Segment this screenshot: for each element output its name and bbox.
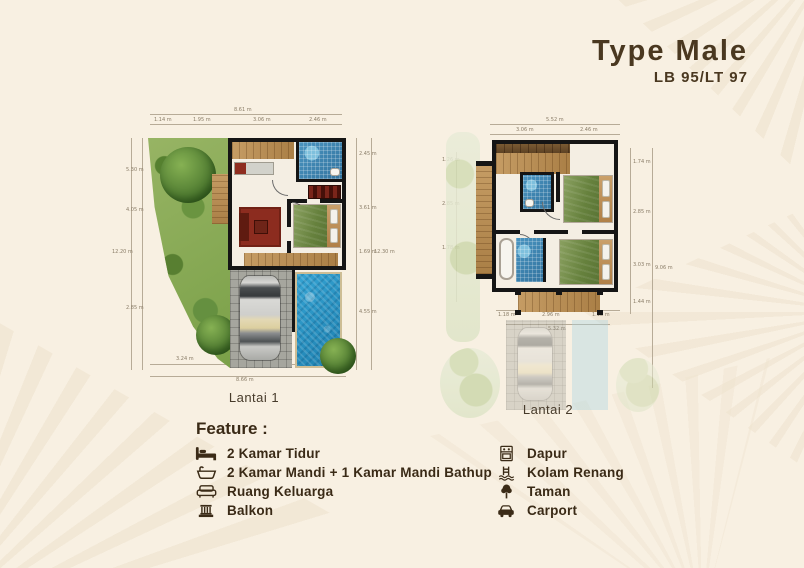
dimension-line bbox=[150, 114, 342, 115]
roof-edge bbox=[496, 144, 570, 153]
wall-segment bbox=[287, 199, 291, 227]
dimension-label: 12.20 m bbox=[112, 250, 133, 255]
house-lantai-2 bbox=[492, 140, 618, 292]
dimension-label: 2.96 m bbox=[542, 313, 560, 318]
feature-label: Taman bbox=[527, 484, 571, 499]
dimension-line bbox=[150, 124, 342, 125]
pillow bbox=[602, 244, 610, 260]
feature-item: Kolam Renang bbox=[494, 463, 624, 482]
dimension-label: 1.74 m bbox=[633, 160, 651, 165]
sofa bbox=[239, 213, 249, 241]
car bbox=[240, 276, 280, 360]
deck bbox=[232, 142, 294, 159]
pillow bbox=[602, 180, 610, 197]
dimension-label: 2.46 m bbox=[309, 118, 327, 123]
feature-list-right: Dapur Kolam Renang Taman Carport bbox=[494, 444, 624, 520]
palm-tree bbox=[160, 147, 216, 203]
wall-segment bbox=[534, 230, 568, 234]
toilet bbox=[525, 199, 534, 207]
dimension-label: 3.06 m bbox=[253, 118, 271, 123]
balcony-post bbox=[597, 310, 603, 315]
dimension-label: 5.52 m bbox=[546, 118, 564, 123]
door-arc bbox=[542, 202, 560, 220]
dimension-line bbox=[652, 148, 653, 388]
feature-item: Balkon bbox=[194, 501, 492, 520]
dimension-label: 5.30 m bbox=[126, 168, 144, 173]
plan-label-lantai-1: Lantai 1 bbox=[128, 390, 380, 405]
feature-item: Taman bbox=[494, 482, 624, 501]
bathroom bbox=[516, 238, 546, 282]
wall-segment bbox=[320, 199, 342, 203]
bathtub bbox=[499, 238, 514, 280]
feature-item: 2 Kamar Mandi + 1 Kamar Mandi Bathup bbox=[194, 463, 492, 482]
dimension-label: 8.61 m bbox=[234, 108, 252, 113]
pillow bbox=[330, 228, 338, 243]
dimension-line bbox=[630, 148, 631, 314]
dimension-label: 2.45 m bbox=[359, 152, 377, 157]
feature-label: 2 Kamar Tidur bbox=[227, 446, 320, 461]
dimension-label: 8.66 m bbox=[236, 378, 254, 383]
dimension-label: 4.55 m bbox=[359, 310, 377, 315]
plan-label-lantai-2: Lantai 2 bbox=[448, 402, 648, 417]
ground-floor-ghost bbox=[496, 320, 620, 410]
ghost-car bbox=[518, 328, 552, 400]
balcony-post bbox=[556, 289, 562, 295]
dimension-line bbox=[490, 134, 620, 135]
sink bbox=[330, 168, 340, 176]
feature-list-left: 2 Kamar Tidur 2 Kamar Mandi + 1 Kamar Ma… bbox=[194, 444, 492, 520]
pillow bbox=[330, 209, 338, 224]
balcony-post bbox=[515, 289, 521, 295]
dimension-label: 1.14 m bbox=[154, 118, 172, 123]
dimension-line bbox=[356, 138, 357, 370]
terrace-deck bbox=[244, 253, 338, 266]
stove bbox=[235, 163, 246, 174]
palm-tree bbox=[320, 338, 356, 374]
house-lantai-1 bbox=[228, 138, 346, 270]
coffee-table bbox=[254, 220, 268, 234]
dimension-label: 2.85 m bbox=[633, 210, 651, 215]
kitchen-icon bbox=[494, 445, 518, 462]
bed-blanket bbox=[564, 176, 599, 222]
feature-label: 2 Kamar Mandi + 1 Kamar Mandi Bathup bbox=[227, 465, 492, 480]
dimension-label: 4.05 m bbox=[126, 208, 144, 213]
bed-headboard bbox=[327, 205, 340, 247]
dimension-line bbox=[371, 138, 372, 370]
dimension-label: 9.06 m bbox=[655, 266, 673, 271]
door-arc bbox=[272, 180, 288, 196]
wall-segment bbox=[496, 230, 520, 234]
bed bbox=[294, 205, 340, 247]
feature-item: Ruang Keluarga bbox=[194, 482, 492, 501]
bed-headboard bbox=[599, 240, 612, 284]
bed bbox=[564, 176, 612, 222]
dimension-label: 12.30 m bbox=[374, 250, 395, 255]
feature-item: 2 Kamar Tidur bbox=[194, 444, 492, 463]
page-subtitle: LB 95/LT 97 bbox=[592, 69, 748, 86]
dimension-label: 1.18 m bbox=[498, 313, 516, 318]
wall-segment bbox=[582, 230, 614, 234]
pillow bbox=[602, 264, 610, 280]
sofa-icon bbox=[194, 484, 218, 499]
bed-icon bbox=[194, 446, 218, 461]
bed-headboard bbox=[599, 176, 612, 222]
deck bbox=[496, 153, 570, 174]
carport-icon bbox=[494, 504, 518, 518]
feature-label: Balkon bbox=[227, 503, 273, 518]
feature-label: Ruang Keluarga bbox=[227, 484, 333, 499]
bed-blanket bbox=[560, 240, 599, 284]
dimension-label: 3.03 m bbox=[633, 263, 651, 268]
bathtub-icon bbox=[194, 465, 218, 480]
dimension-label: 3.61 m bbox=[359, 206, 377, 211]
floorplan-lantai-2: 5.52 m 3.06 m 2.46 m 1.26 m 2.85 m 1.78 … bbox=[448, 118, 672, 418]
dimension-label: 1.95 m bbox=[193, 118, 211, 123]
feature-label: Carport bbox=[527, 503, 577, 518]
balcony-icon bbox=[194, 503, 218, 518]
dimension-label: 2.46 m bbox=[580, 128, 598, 133]
feature-item: Carport bbox=[494, 501, 624, 520]
floorplan-lantai-1: 8.61 m 1.14 m 1.95 m 3.06 m 2.46 m 12.20… bbox=[128, 110, 380, 402]
pool-icon bbox=[494, 465, 518, 481]
balcony-post bbox=[515, 310, 521, 315]
page-title: Type Male bbox=[592, 36, 748, 66]
bed bbox=[560, 240, 612, 284]
wardrobe bbox=[308, 185, 341, 199]
feature-item: Dapur bbox=[494, 444, 624, 463]
title-block: Type Male LB 95/LT 97 bbox=[592, 36, 748, 86]
wall-segment bbox=[556, 172, 560, 202]
flyer-canvas: Type Male LB 95/LT 97 8.61 m 1.14 m 1.95… bbox=[0, 0, 804, 568]
pillow bbox=[602, 201, 610, 218]
feature-label: Kolam Renang bbox=[527, 465, 624, 480]
bed-blanket bbox=[294, 205, 327, 247]
dimension-label: 3.06 m bbox=[516, 128, 534, 133]
balcony-post bbox=[597, 289, 603, 295]
bathroom bbox=[296, 142, 342, 182]
dimension-label: 3.24 m bbox=[176, 357, 194, 362]
balcony-deck bbox=[518, 292, 600, 312]
dimension-label: 1.44 m bbox=[633, 300, 651, 305]
ghost-pool bbox=[572, 320, 608, 410]
feature-heading: Feature : bbox=[196, 419, 268, 439]
dimension-label: 2.85 m bbox=[126, 306, 144, 311]
garden-strip bbox=[446, 132, 480, 342]
tree-icon bbox=[494, 483, 518, 500]
feature-label: Dapur bbox=[527, 446, 567, 461]
dimension-line bbox=[490, 124, 620, 125]
